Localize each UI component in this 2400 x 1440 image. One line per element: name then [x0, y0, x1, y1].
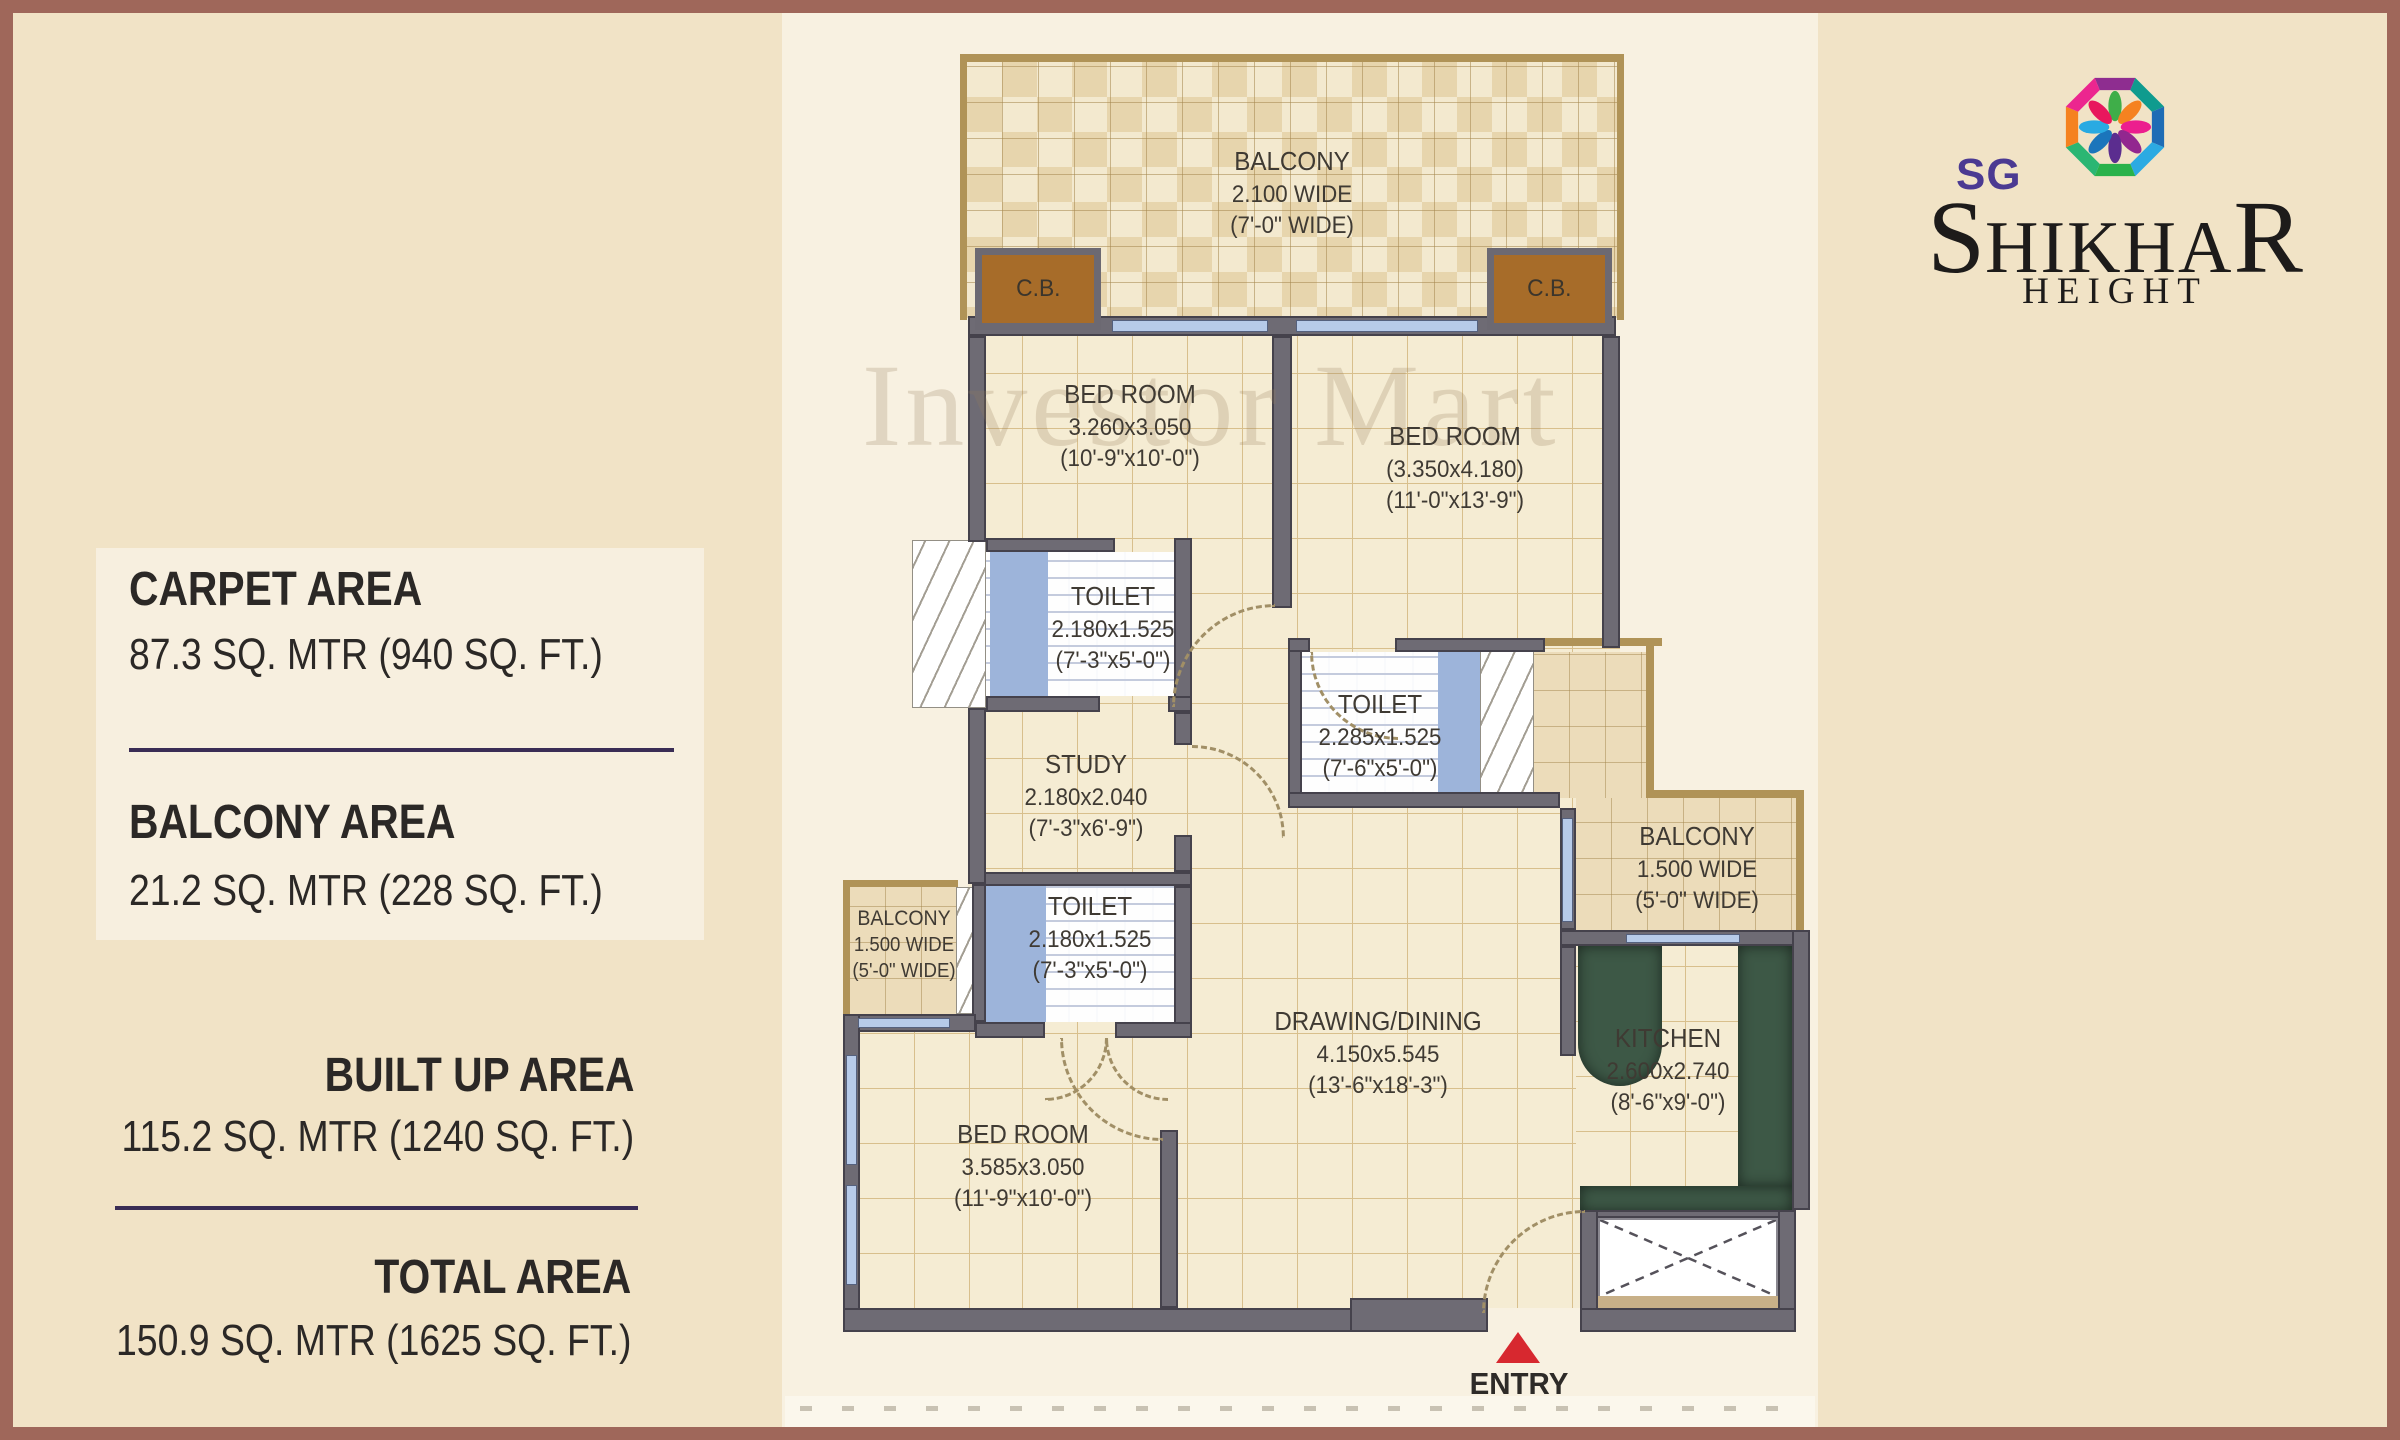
- balcony-trim: [960, 54, 1624, 62]
- wall: [1580, 1308, 1796, 1332]
- label-bed1: BED ROOM3.260x3.050(10'-9"x10'-0"): [1060, 378, 1200, 474]
- wall: [1602, 336, 1620, 648]
- label-study: STUDY2.180x2.040(7'-3"x6'-9"): [1025, 748, 1148, 844]
- wall: [1350, 1298, 1488, 1332]
- wall: [986, 696, 1100, 712]
- builtup-area-value: 115.2 SQ. MTR (1240 SQ. FT.): [121, 1112, 634, 1162]
- window: [846, 1055, 857, 1165]
- window: [1562, 818, 1573, 922]
- divider: [129, 748, 674, 752]
- wall: [1288, 792, 1560, 808]
- wall: [1115, 1022, 1192, 1038]
- wall: [1288, 638, 1302, 808]
- label-toilet3: TOILET2.180x1.525(7'-3"x5'-0"): [1029, 890, 1152, 986]
- carpet-area-title: CARPET AREA: [129, 562, 422, 617]
- wall: [1580, 1210, 1796, 1218]
- wall: [1395, 638, 1545, 652]
- wall: [1792, 930, 1810, 1210]
- label-toilet1: TOILET2.180x1.525(7'-3"x5'-0"): [1052, 580, 1175, 676]
- threshold: [1598, 1296, 1778, 1308]
- balcony-trim: [1528, 638, 1662, 646]
- kitchen-counter: [1580, 1186, 1792, 1212]
- shaft-duct: [1480, 645, 1534, 800]
- balcony-trim: [960, 54, 967, 320]
- wall: [1160, 1130, 1178, 1308]
- balcony-trim: [1796, 790, 1804, 936]
- wall: [975, 872, 1192, 886]
- brochure-page: { "info_panel": { "blocks": [ {"title": …: [0, 0, 2400, 1440]
- bottom-strip: [785, 1396, 1815, 1427]
- wall: [968, 708, 986, 884]
- wall: [1288, 638, 1310, 652]
- total-area-title: TOTAL AREA: [374, 1250, 631, 1305]
- label-balcony-top: BALCONY2.100 WIDE(7'-0" WIDE): [1230, 145, 1354, 241]
- entry-label: ENTRY: [1470, 1366, 1569, 1402]
- wall: [1272, 336, 1292, 608]
- carpet-area-value: 87.3 SQ. MTR (940 SQ. FT.): [129, 630, 603, 680]
- window: [1626, 934, 1740, 943]
- brand-logo-octagon-icon: [2058, 70, 2172, 184]
- kitchen-counter: [1738, 946, 1792, 1186]
- cupboard-left: C.B.: [975, 248, 1101, 330]
- wall: [1174, 886, 1192, 1038]
- wall: [975, 1022, 1045, 1038]
- cupboard-label: C.B.: [1527, 275, 1571, 303]
- balcony-area-value: 21.2 SQ. MTR (228 SQ. FT.): [129, 866, 603, 916]
- toilet1-shower: [990, 552, 1048, 696]
- label-bed3: BED ROOM3.585x3.050(11'-9"x10'-0"): [954, 1118, 1092, 1214]
- balcony-trim: [843, 880, 958, 887]
- bottom-fine-print: [800, 1406, 1800, 1411]
- label-kitchen: KITCHEN2.600x2.740(8'-6"x9'-0"): [1607, 1022, 1730, 1118]
- wall: [972, 884, 986, 1022]
- balcony-trim: [1617, 54, 1624, 320]
- cupboard-right: C.B.: [1487, 248, 1612, 330]
- shaft-duct: [912, 540, 986, 708]
- brand-subtitle: HEIGHT: [1890, 270, 2340, 313]
- cupboard-label: C.B.: [1016, 275, 1060, 303]
- entry-arrow-icon: [1496, 1332, 1540, 1363]
- wall: [1174, 712, 1192, 745]
- lift-shaft-box: [1598, 1218, 1778, 1298]
- builtup-area-title: BUILT UP AREA: [324, 1048, 634, 1103]
- balcony-trim: [1646, 790, 1804, 798]
- balcony-right-upper-tiles: [1534, 652, 1654, 798]
- balcony-area-title: BALCONY AREA: [129, 795, 455, 850]
- wall: [986, 538, 1115, 552]
- divider: [115, 1206, 638, 1210]
- label-bed2: BED ROOM(3.350x4.180)(11'-0"x13'-9"): [1386, 420, 1524, 516]
- label-toilet2: TOILET2.285x1.525(7'-6"x5'-0"): [1319, 688, 1442, 784]
- balcony-trim: [843, 880, 850, 1032]
- window: [1296, 320, 1478, 332]
- wall: [1560, 946, 1576, 1056]
- total-area-value: 150.9 SQ. MTR (1625 SQ. FT.): [116, 1316, 631, 1366]
- shaft-cross-icon: [1600, 1220, 1776, 1296]
- label-drawing-dining: DRAWING/DINING4.150x5.545(13'-6"x18'-3"): [1274, 1005, 1481, 1101]
- window: [1112, 320, 1268, 332]
- window: [858, 1018, 950, 1028]
- wall: [1174, 835, 1192, 872]
- label-balcony-left: BALCONY1.500 WIDE(5'-0" WIDE): [852, 905, 955, 984]
- balcony-trim: [1646, 638, 1654, 798]
- wall: [968, 336, 986, 542]
- toilet2-shower: [1438, 652, 1480, 792]
- window: [846, 1185, 857, 1285]
- label-balcony-right: BALCONY1.500 WIDE(5'-0" WIDE): [1635, 820, 1759, 916]
